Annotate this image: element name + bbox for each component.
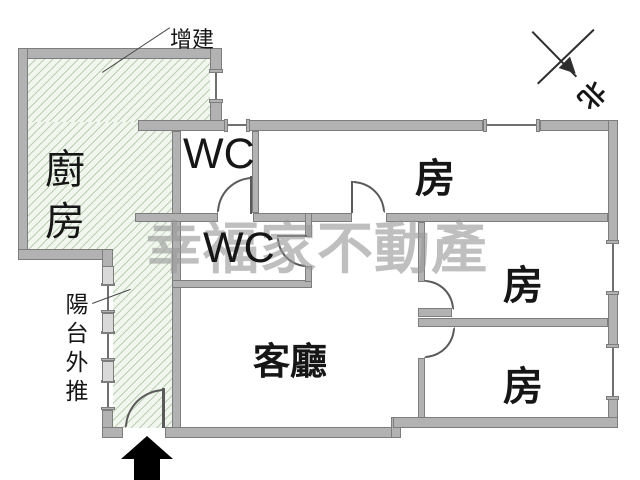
wc-lower-label: WC: [203, 224, 275, 273]
window-line-top-right: [487, 124, 537, 126]
window-frame-balcony-2: [102, 313, 114, 333]
window-cap: [606, 344, 619, 348]
window-cap: [606, 240, 619, 244]
door-leaf-entry: [162, 388, 165, 428]
window-cap: [209, 99, 223, 103]
window-line-balcony-2: [107, 334, 109, 359]
living-room-label: 客廳: [253, 331, 327, 385]
watermark-text: 幸福家不動產: [146, 204, 488, 285]
window-cap: [101, 407, 115, 410]
entry-arrow-shaft: [134, 457, 160, 480]
addition-label: 增建: [170, 22, 214, 54]
room-middle-label: 房: [503, 253, 543, 311]
wall-bottom-main: [165, 427, 400, 438]
wall-bottom-right: [393, 417, 618, 428]
door-arc-room-bottom: [424, 327, 455, 358]
window-cap: [606, 291, 619, 295]
wall-top-segment-3: [540, 120, 618, 131]
north-label: 北: [571, 74, 616, 119]
floor-plan: 廚房 增建 WC WC 客廳 房 房 房 陽台外推 北 幸福家不動產: [0, 0, 640, 480]
kitchen-label: 廚房: [32, 148, 90, 252]
window-cap: [209, 69, 223, 73]
room-bottom-label: 房: [503, 354, 543, 412]
window-cap: [483, 119, 487, 132]
wall-bottom-left-stub: [102, 427, 123, 438]
wall-top-segment-2: [247, 120, 483, 131]
window-line-right-lower: [612, 348, 614, 397]
wall-right-segment-1: [608, 120, 618, 243]
wall-rooms-divider: [418, 318, 608, 327]
room-top-label: 房: [415, 146, 455, 204]
window-cap: [536, 119, 540, 132]
balcony-label: 陽台外推: [58, 292, 92, 408]
window-frame-balcony-3: [102, 361, 114, 382]
window-line-kitchen-right: [215, 72, 217, 100]
wall-right-segment-2: [608, 292, 618, 347]
wc-upper-label: WC: [183, 130, 255, 179]
wall-kitchen-left: [18, 48, 28, 260]
window-line-balcony-1: [107, 286, 109, 311]
entry-arrow-icon: [121, 436, 173, 459]
window-cap: [606, 396, 619, 400]
hatch-kitchen-upper: [28, 58, 210, 122]
window-frame-balcony-1: [102, 266, 114, 285]
window-line-top-left: [227, 124, 247, 126]
window-line-right-upper: [612, 244, 614, 292]
window-line-balcony-3: [107, 383, 109, 408]
